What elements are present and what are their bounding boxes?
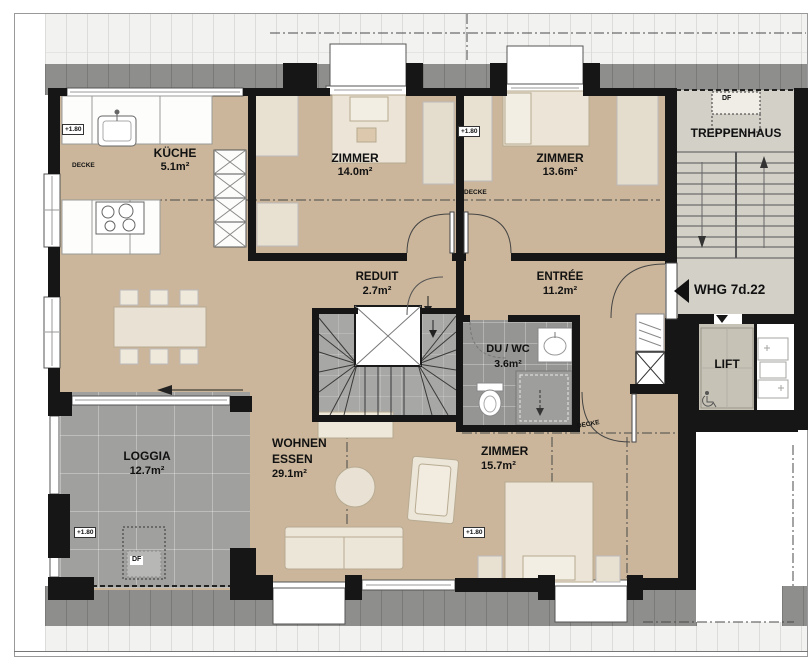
room-label-lift: LIFT — [677, 357, 777, 372]
level-marker-kitchen: +1.80 — [62, 124, 84, 135]
room-label-kueche: KÜCHE — [125, 146, 225, 161]
plan-linework — [0, 0, 810, 672]
room-area-duwc: 3.6m² — [458, 358, 558, 371]
bed-zimmer-s — [478, 482, 620, 582]
level-marker-zimmer-s: +1.80 — [463, 527, 485, 538]
room-area-wohnen: 29.1m² — [272, 468, 307, 482]
floor-plan: KÜCHE 5.1m² ZIMMER 14.0m² ZIMMER 13.6m² … — [0, 0, 810, 672]
room-area-entree: 11.2m² — [510, 285, 610, 299]
room-area-kueche: 5.1m² — [125, 161, 225, 175]
room-label-loggia: LOGGIA — [97, 449, 197, 464]
coat-rack — [636, 314, 664, 351]
stairwell-stairs — [677, 152, 794, 258]
room-label-duwc: DU / WC — [458, 343, 558, 357]
dormer-windows-top — [326, 44, 587, 95]
ceiling-label-zimmer-ne: DECKE — [464, 189, 487, 197]
room-label-entree: ENTRÉE — [510, 270, 610, 284]
roof-window-label-stairwell: DF — [722, 95, 731, 104]
room-area-zimmer-nw: 14.0m² — [305, 166, 405, 180]
kitchen-stove — [96, 202, 144, 234]
level-marker-zimmer-ne: +1.80 — [458, 126, 480, 137]
room-label-zimmer-s: ZIMMER — [481, 444, 528, 459]
roof-window-label-loggia: DF — [130, 556, 143, 565]
room-area-reduit: 2.7m² — [327, 285, 427, 299]
dining-table-set — [114, 290, 206, 364]
room-area-loggia: 12.7m² — [97, 465, 197, 479]
room-label-zimmer-nw: ZIMMER — [305, 151, 405, 166]
room-label-zimmer-ne: ZIMMER — [510, 151, 610, 166]
room-label-wohnen-line2: ESSEN — [272, 452, 313, 467]
room-label-reduit: REDUIT — [327, 270, 427, 284]
sliding-door-arrow — [157, 385, 243, 395]
room-area-zimmer-s: 15.7m² — [481, 460, 516, 474]
roof-window-loggia — [123, 527, 165, 579]
level-marker-loggia: +1.80 — [74, 527, 96, 538]
dormer-windows-bottom — [269, 580, 631, 624]
service-shaft — [636, 352, 665, 385]
ceiling-label-kitchen: DECKE — [72, 162, 95, 170]
wheelchair-icon — [703, 391, 716, 407]
room-label-wohnen-line1: WOHNEN — [272, 436, 327, 451]
apartment-id-label: WHG 7d.22 — [694, 282, 765, 299]
room-label-treppenhaus: TREPPENHAUS — [676, 126, 796, 141]
room-area-zimmer-ne: 13.6m² — [510, 166, 610, 180]
